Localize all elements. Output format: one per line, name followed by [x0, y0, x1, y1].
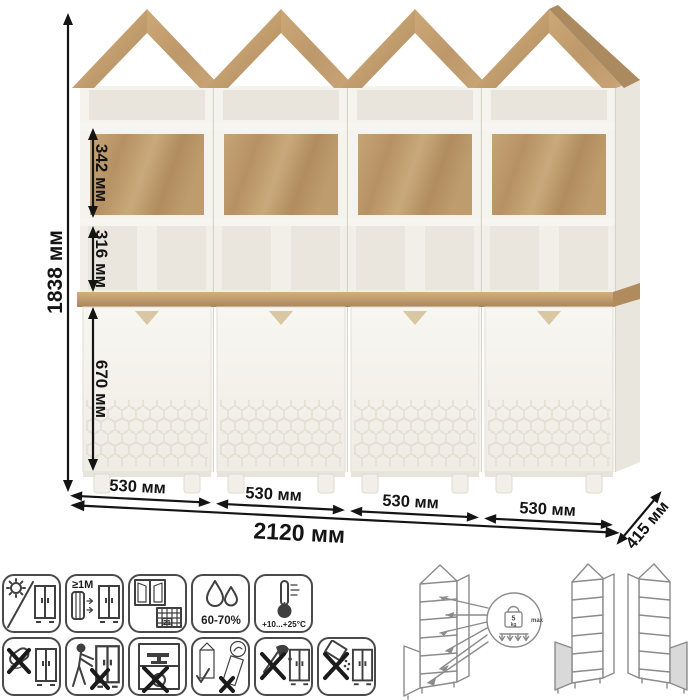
dim-316-label: 316 мм — [92, 230, 111, 288]
care-icons-row-1: ≥1М 21 — [2, 574, 376, 633]
dim-depth: 415 мм — [613, 488, 677, 558]
person-dragging-icon — [68, 640, 122, 694]
icon-temperature-range: +10...+25°C — [254, 574, 313, 633]
max-load-unit: kg — [511, 622, 517, 628]
right-unit-outline — [628, 564, 687, 693]
icon-do-not-drag — [65, 637, 124, 696]
distance-label: ≥1М — [72, 579, 93, 591]
unit-4 — [474, 9, 624, 493]
temperature-label: +10...+25°C — [262, 620, 306, 629]
open-door — [404, 646, 420, 696]
no-hatchet-icon — [257, 640, 311, 694]
dim-670-label: 670 мм — [92, 360, 111, 418]
icon-no-abrasive-cleaners — [317, 637, 376, 696]
dim-342-label: 342 мм — [92, 144, 111, 202]
open-door — [670, 642, 687, 690]
icon-avoid-direct-sunlight — [2, 574, 61, 633]
unit-2 — [206, 9, 356, 493]
upright-vs-tilted-icon — [194, 640, 248, 694]
icon-no-wet-cleaning — [2, 637, 61, 696]
open-door — [555, 642, 572, 690]
icon-transport-upright-only — [191, 637, 250, 696]
no-abrasive-powder-icon — [320, 640, 374, 694]
care-icons: ≥1М 21 — [2, 574, 376, 696]
icon-relative-humidity: 60-70% — [191, 574, 250, 633]
icon-do-not-overload — [128, 637, 187, 696]
icon-no-sharp-tools — [254, 637, 313, 696]
water-drops-icon: 60-70% — [194, 577, 248, 631]
shelf-load-diagram: 5 kg max — [400, 556, 550, 700]
dim-530-label-4: 530 мм — [519, 499, 576, 520]
open-doors-diagram — [548, 556, 694, 700]
sun-slash-wardrobe-icon — [5, 577, 59, 631]
icon-ventilate-room-acclimatize: 21 — [128, 574, 187, 633]
care-icons-row-2 — [2, 637, 376, 696]
calendar-day: 21 — [163, 620, 171, 627]
window-calendar-icon: 21 — [131, 577, 185, 631]
overload-anvil-icon — [131, 640, 185, 694]
unit-3 — [340, 9, 490, 493]
dim-height: 1838 мм — [44, 13, 73, 492]
dim-2120-label: 2120 мм — [253, 517, 346, 548]
no-wet-sponge-icon — [5, 640, 59, 694]
furniture-illustration: 1838 мм 342 мм 316 мм 670 мм 530 мм — [0, 0, 694, 562]
left-unit-outline — [555, 564, 614, 693]
dim-unit-width-3: 530 мм — [350, 490, 480, 522]
dim-530-label-1: 530 мм — [109, 477, 166, 498]
dim-unit-width-4: 530 мм — [484, 497, 614, 529]
radiator-distance-icon: ≥1М — [68, 577, 122, 631]
icon-keep-1m-from-heat-sources: ≥1М — [65, 574, 124, 633]
dim-530-label-2: 530 мм — [245, 484, 302, 505]
dim-530-label-3: 530 мм — [382, 492, 439, 513]
product-dimension-sheet: 1838 мм 342 мм 316 мм 670 мм 530 мм — [0, 0, 694, 700]
thermometer-icon: +10...+25°C — [257, 577, 311, 631]
dim-415-label: 415 мм — [622, 498, 672, 553]
max-label: max — [531, 618, 544, 624]
dim-height-label: 1838 мм — [44, 230, 67, 314]
humidity-label: 60-70% — [201, 615, 241, 627]
